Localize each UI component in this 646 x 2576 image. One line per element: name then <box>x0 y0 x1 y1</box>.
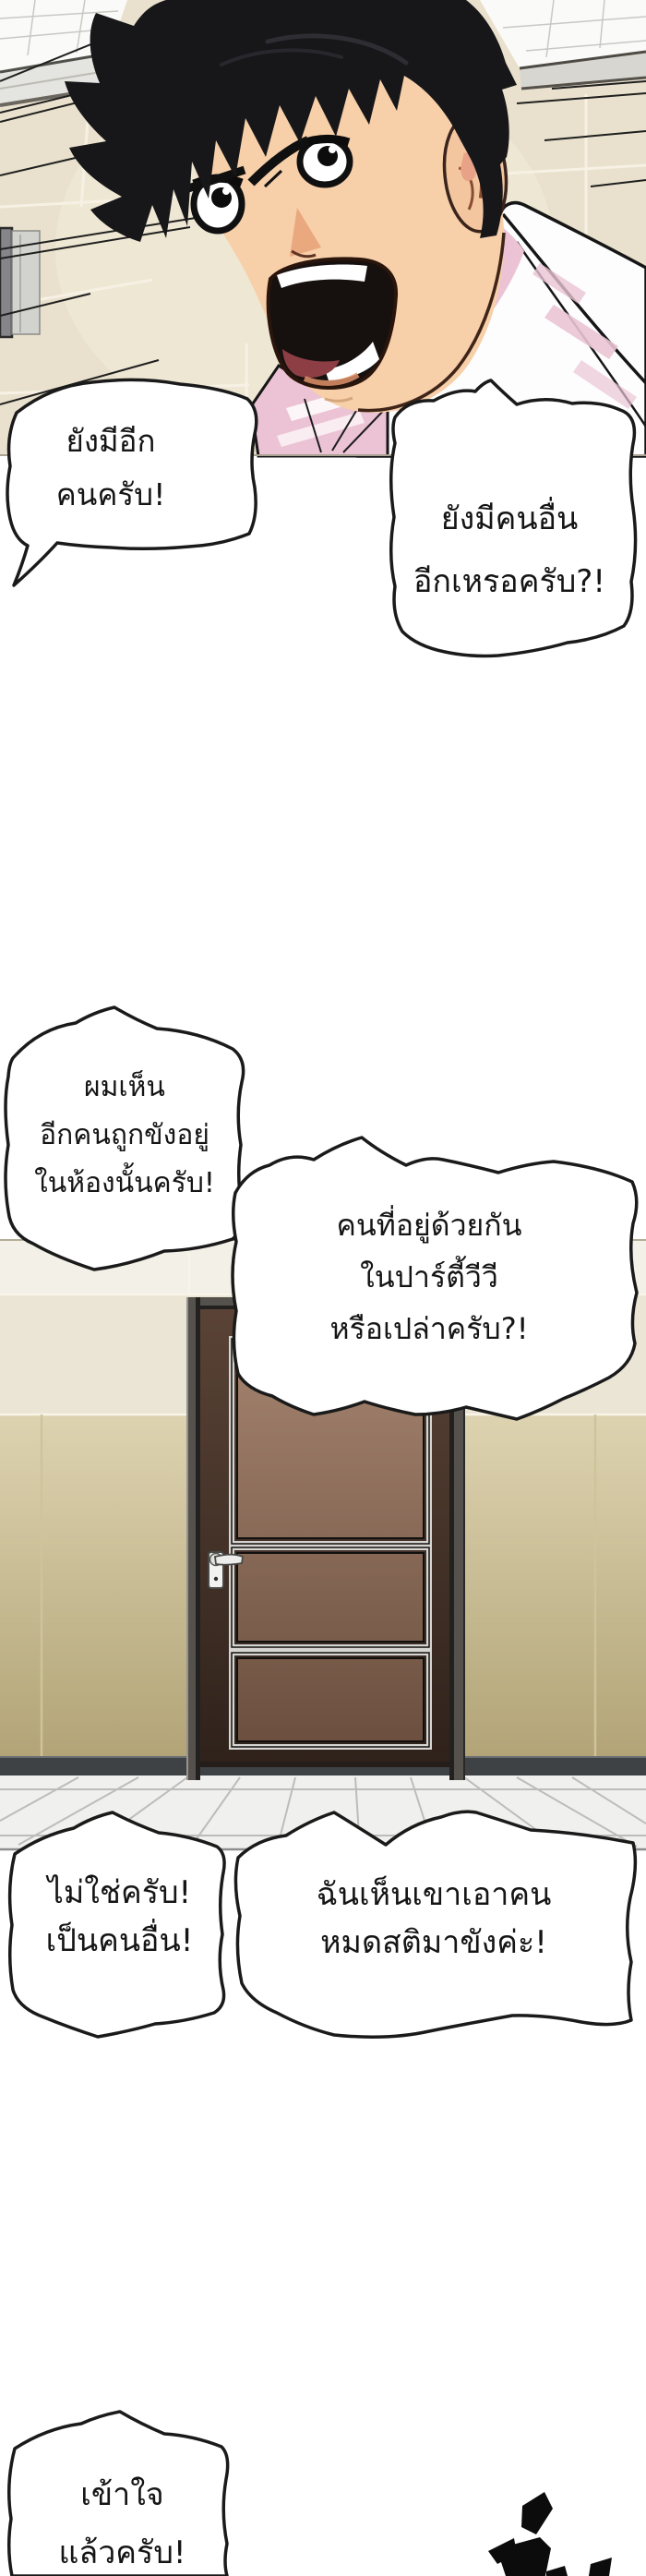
speech-bubble-2-text: ยังมีคนอื่น อีกเหรอครับ?! <box>399 488 620 613</box>
bubble-line: หมดสติมาขังค่ะ! <box>263 1919 604 1967</box>
bubble-line: หรือเปล่าครับ?! <box>268 1303 591 1354</box>
speech-bubble-3-text: ผมเห็น อีกคนถูกขังอยู่ ในห้องนั้นครับ! <box>18 1064 231 1208</box>
bubble-line: เข้าใจ <box>23 2466 221 2524</box>
speech-bubble-5-text: ไม่ใช่ครับ! เป็นคนอื่น! <box>20 1869 219 1965</box>
bubble-line: ฉันเห็นเขาเอาคน <box>263 1871 604 1919</box>
bubble-line: ผมเห็น <box>18 1064 231 1112</box>
speech-bubble-4-text: คนที่อยู่ด้วยกัน ในปาร์ตี้วีวี หรือเปล่า… <box>268 1199 591 1354</box>
bubble-line: ยังมีคนอื่น <box>399 488 620 550</box>
webtoon-page: ยังมีอีก คนครับ! ยังมีคนอื่น อีกเหรอครับ… <box>0 0 646 2576</box>
handle-lever <box>215 1555 243 1565</box>
bubble-line: อีกเหรอครับ?! <box>399 550 620 613</box>
bubble-line: อีกคนถูกขังอยู่ <box>18 1112 231 1160</box>
bubble-line: แล้วครับ! <box>23 2524 221 2576</box>
speech-bubble-7-text: เข้าใจ แล้วครับ! <box>23 2466 221 2576</box>
bubble-line: ยังมีอีก <box>18 415 203 468</box>
sfx-ink-glyph <box>488 2492 612 2576</box>
bubble-line: ไม่ใช่ครับ! <box>20 1869 219 1917</box>
keyhole <box>214 1577 218 1581</box>
bubble-line: ในปาร์ตี้วีวี <box>268 1251 591 1303</box>
open-mouth <box>269 259 396 388</box>
bubble-line: คนที่อยู่ด้วยกัน <box>268 1199 591 1251</box>
speech-bubble-1-text: ยังมีอีก คนครับ! <box>18 415 203 522</box>
bubble-line: คนครับ! <box>18 468 203 522</box>
bubble-line: เป็นคนอื่น! <box>20 1917 219 1965</box>
door-bottom-shadow <box>200 1762 449 1767</box>
bubble-line: ในห้องนั้นครับ! <box>18 1160 231 1208</box>
speech-bubble-6-text: ฉันเห็นเขาเอาคน หมดสติมาขังค่ะ! <box>263 1871 604 1967</box>
